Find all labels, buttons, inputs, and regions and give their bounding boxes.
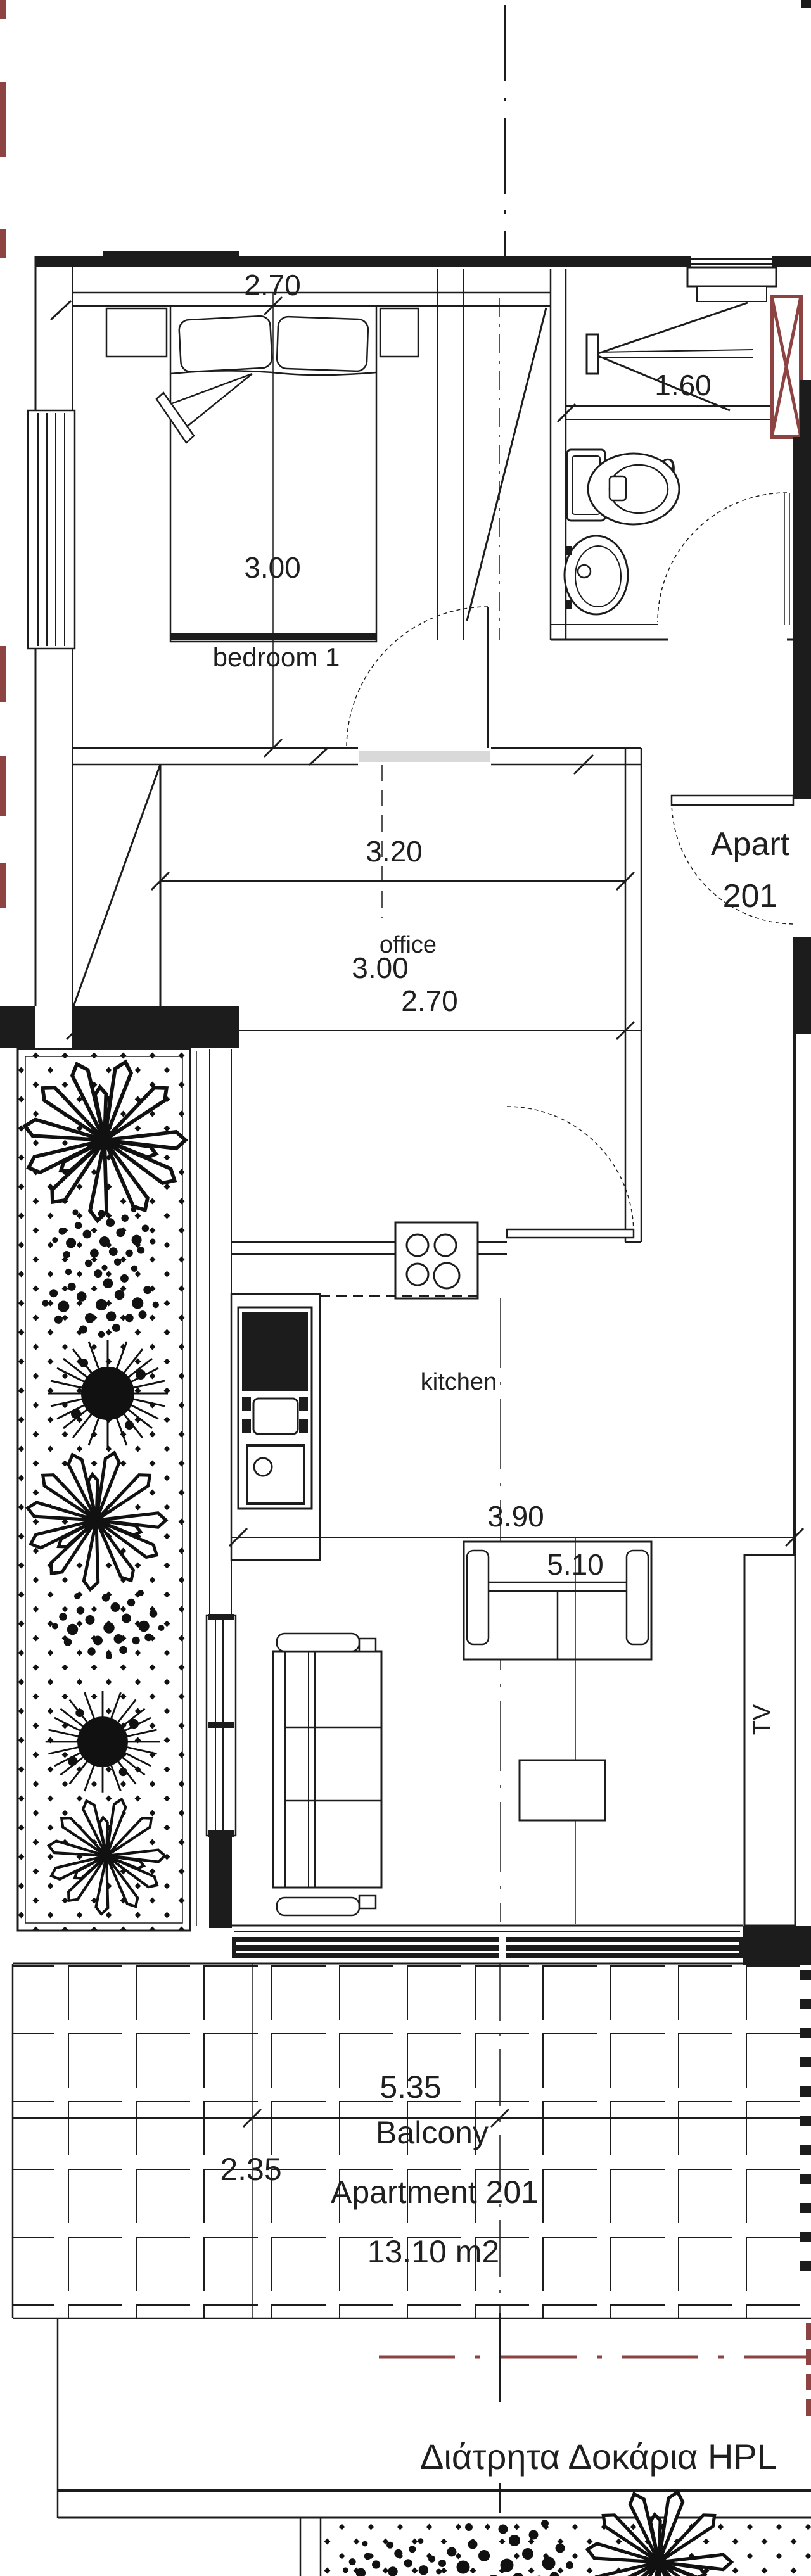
- door-arc: [658, 493, 787, 622]
- dim-kitchen-width: 3.90: [487, 1500, 544, 1533]
- dim-office-depth-b: 2.70: [401, 984, 458, 1017]
- left-living-wall: [196, 1049, 236, 1928]
- right-edge-red-dashes: [806, 2323, 811, 2416]
- door-arc: [507, 1107, 634, 1233]
- living-window: [207, 1614, 236, 1837]
- desk-icon: [73, 765, 160, 1006]
- wall-black-band: [0, 1006, 35, 1048]
- nightstand-icon: [380, 308, 418, 357]
- left-edge-red-wall: [0, 0, 6, 908]
- sliding-door: [232, 1926, 811, 1965]
- room-label-kitchen: kitchen: [421, 1369, 497, 1395]
- washbasin-icon: [565, 536, 628, 614]
- planter-bottom: [321, 2490, 811, 2576]
- kitchen-counter: [231, 1294, 478, 1560]
- kitchen-door: [507, 1107, 634, 1238]
- door-threshold: [359, 751, 490, 762]
- bottom-annotation: Διάτρητα Δοκάρια HPL: [379, 2313, 811, 2513]
- wall-lintel: [103, 251, 239, 267]
- tv-label: TV: [749, 1704, 776, 1735]
- room-label-bedroom: bedroom 1: [213, 642, 340, 672]
- wall-black-corner: [209, 1836, 232, 1928]
- dim-balcony-width: 5.35: [380, 2069, 441, 2105]
- nightstand-icon: [106, 308, 167, 357]
- pillow-icon: [179, 315, 272, 372]
- floor-plan-page: 2.70 3.00 bedroom 1 1.60 2.00: [0, 0, 811, 2576]
- coffee-table-icon: [520, 1760, 605, 1820]
- red-column: [772, 296, 801, 437]
- dim-shower-width: 1.60: [655, 369, 712, 402]
- stove-icon: [395, 1222, 478, 1298]
- sofa-icon: [273, 1634, 381, 1915]
- apartment-label-line2: 201: [723, 878, 778, 915]
- tv-unit: TV: [744, 1555, 795, 1926]
- dim-bedroom-length: 3.00: [244, 551, 301, 584]
- exterior-wall-top: [35, 251, 811, 301]
- pillow-icon: [277, 317, 369, 372]
- note-greek: Διάτρητα Δοκάρια HPL: [420, 2437, 777, 2477]
- wall-black-band: [72, 1006, 239, 1048]
- planter-left: [18, 1049, 190, 1931]
- dim-tick: [51, 301, 71, 320]
- balcony-railing-box: [687, 267, 776, 286]
- room-label-balcony: Balcony: [376, 2115, 489, 2150]
- dim-office-depth-a: 3.00: [352, 951, 409, 984]
- bathroom: 1.60 2.00: [551, 269, 811, 640]
- toilet-icon: [567, 450, 679, 524]
- balcony-apartment-label: Apartment 201: [331, 2174, 539, 2210]
- balcony: 5.35 Balcony 2.35 Apartment 201 13.10 m2: [13, 1964, 811, 2318]
- wall-black-corner: [743, 1926, 811, 1965]
- living-area: 5.10 TV: [273, 1537, 795, 1926]
- floor-plan-canvas: 2.70 3.00 bedroom 1 1.60 2.00: [0, 0, 811, 2576]
- bedroom-window: [28, 410, 75, 649]
- sink-icon: [238, 1307, 312, 1509]
- bathroom-door: [658, 493, 789, 625]
- corner-marker: [801, 0, 811, 8]
- dim-bedroom-width: 2.70: [244, 269, 301, 301]
- closet-diagonal: [467, 308, 546, 621]
- bedroom: 2.70 3.00 bedroom 1: [51, 269, 551, 757]
- bed-icon: [156, 306, 376, 642]
- dim-balcony-depth: 2.35: [220, 2152, 281, 2187]
- balcony-area-label: 13.10 m2: [367, 2234, 499, 2269]
- dim-office-width: 3.20: [366, 835, 423, 868]
- apartment-label-line1: Apart: [711, 826, 790, 863]
